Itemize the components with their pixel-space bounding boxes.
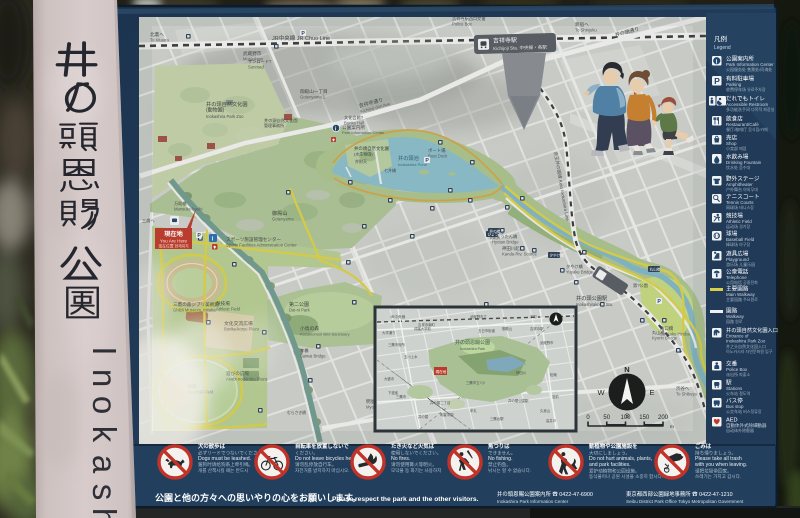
svg-text:100: 100 [620, 415, 631, 421]
svg-text:N: N [624, 365, 629, 374]
svg-text:たき火など火気は: たき火など火気は [391, 442, 435, 450]
svg-text:久我山: 久我山 [540, 408, 551, 413]
svg-text:W: W [597, 388, 605, 397]
svg-text:井の頭二丁目: 井の頭二丁目 [430, 400, 450, 405]
svg-text:Please respect the park and th: Please respect the park and the other vi… [332, 496, 479, 503]
svg-text:n: n [86, 369, 123, 387]
svg-text:東京都西部公園緑地事務所 ☎ 0422-47-1210: 東京都西部公園緑地事務所 ☎ 0422-47-1210 [626, 490, 733, 498]
svg-text:网球场 테니스장: 网球场 테니스장 [726, 204, 754, 210]
svg-text:모닥불 등 화기는 사용하지: 모닥불 등 화기는 사용하지 [391, 467, 441, 474]
svg-text:with you when leaving.: with you when leaving. [695, 462, 747, 468]
svg-text:游乐场 儿童乐园: 游乐场 儿童乐园 [726, 261, 755, 267]
svg-text:公园服务处 售票处/问询处: 公园服务处 售票处/问询处 [726, 66, 772, 72]
svg-text:公園と他の方々への思いやりの心をお願いします。: 公園と他の方々への思いやりの心をお願いします。 [155, 492, 361, 503]
svg-text:吉祥寺駅: 吉祥寺駅 [530, 326, 544, 331]
svg-text:井の頭恩賜公園: 井の頭恩賜公園 [455, 339, 490, 346]
svg-text:Dogs must be leashed.: Dogs must be leashed. [198, 456, 251, 462]
svg-text:Do not hurt animals, plants,: Do not hurt animals, plants, [589, 456, 652, 462]
svg-text:下連雀: 下連雀 [388, 390, 399, 395]
svg-text:自転車を放置しないで: 自転車を放置しないで [295, 442, 349, 450]
svg-text:御殿山: 御殿山 [502, 326, 513, 331]
svg-text:井の頭恩賜公園案内所 ☎ 0422-47-6900: 井の頭恩賜公園案内所 ☎ 0422-47-6900 [497, 490, 593, 498]
svg-text:自动体外除颤器: 自动体外除颤器 [726, 427, 754, 433]
svg-text:武蔵野市立: 武蔵野市立 [470, 314, 488, 319]
svg-text:公用电话 공중전화: 公用电话 공중전화 [726, 279, 758, 285]
svg-text:k: k [86, 426, 123, 443]
svg-text:Seibu District Park Office Tok: Seibu District Park Office Tokyo Metropo… [626, 499, 744, 504]
svg-text:ごみは: ごみは [695, 442, 712, 450]
svg-text:動植物や公園施設を: 動植物や公園施設を [589, 442, 638, 450]
svg-text:园路 원로: 园路 원로 [726, 318, 743, 324]
svg-text:神田川: 神田川 [516, 370, 527, 375]
svg-text:Inokashira Park Information Ce: Inokashira Park Information Center [497, 499, 569, 504]
svg-text:三鷹市役所: 三鷹市役所 [388, 342, 406, 347]
svg-text:JR中央線: JR中央線 [390, 314, 406, 319]
svg-text:낚시는 할 수 없습니다.: 낚시는 할 수 없습니다. [488, 467, 531, 474]
svg-text:Legend: Legend [714, 45, 731, 51]
svg-text:150: 150 [639, 415, 650, 421]
svg-text:Please take all trash: Please take all trash [695, 456, 742, 462]
svg-text:多功能洗手间 다목적 화장실: 多功能洗手间 다목적 화장실 [726, 106, 775, 112]
svg-text:犬の散歩は: 犬の散歩は [198, 442, 226, 450]
svg-text:井の頭: 井の頭 [418, 414, 429, 419]
svg-text:No fishing.: No fishing. [488, 456, 513, 462]
svg-text:收费停车场 유료주차장: 收费停车场 유료주차장 [726, 86, 766, 92]
svg-text:凡例: 凡例 [714, 34, 727, 43]
svg-text:I: I [86, 346, 123, 355]
svg-text:三鷹市立?小: 三鷹市立?小 [466, 380, 485, 385]
svg-text:牟礼: 牟礼 [470, 408, 477, 413]
svg-text:玉川上水: 玉川上水 [404, 354, 418, 359]
svg-text:本町: 本町 [530, 314, 537, 319]
svg-text:Inokashira Park Zoo: Inokashira Park Zoo [726, 339, 766, 344]
svg-text:三鷹台駅: 三鷹台駅 [490, 416, 504, 421]
svg-text:松庵: 松庵 [550, 372, 557, 377]
svg-text:饮水处 음수대: 饮水处 음수대 [726, 164, 750, 170]
svg-text:and park facilities.: and park facilities. [589, 462, 631, 468]
svg-text:公交车站 버스정류장: 公交车站 버스정류장 [726, 408, 762, 414]
svg-text:主要园路 주요원로: 主要园路 주요원로 [726, 296, 758, 302]
svg-text:运动场 경기장: 运动场 경기장 [726, 223, 750, 229]
svg-text:Inokashira Park: Inokashira Park [460, 347, 485, 351]
svg-text:派出所 파출소: 派出所 파출소 [726, 371, 750, 377]
svg-text:s: s [86, 484, 123, 501]
svg-text:개를 산책시킬 때는 반드시: 개를 산책시킬 때는 반드시 [198, 467, 248, 474]
svg-text:大学通り: 大学通り [382, 330, 396, 335]
svg-text:餐厅/咖啡厅 음식점/카페: 餐厅/咖啡厅 음식점/카페 [726, 126, 768, 132]
svg-text:現在地: 現在地 [436, 369, 447, 374]
svg-text:자전거를 방치하지 마십시오.: 자전거를 방치하지 마십시오. [295, 467, 350, 474]
svg-text:火车站 철도역: 火车站 철도역 [726, 390, 750, 396]
svg-text:동식물이나 공원 시설을 소중히 합시다.: 동식물이나 공원 시설을 소중히 합시다. [589, 473, 663, 480]
svg-text:棒球场 야구장: 棒球场 야구장 [726, 241, 750, 247]
svg-text:吉祥寺南町: 吉祥寺南町 [418, 322, 436, 327]
svg-text:P: P [714, 76, 720, 86]
svg-text:h: h [86, 508, 123, 518]
svg-text:a: a [86, 455, 123, 474]
svg-text:E: E [649, 388, 654, 397]
svg-text:이노카시라 자연문화원 입구: 이노카시라 자연문화원 입구 [726, 348, 773, 354]
svg-text:小卖部 매점: 小卖部 매점 [726, 145, 747, 151]
svg-text:高井戸: 高井戸 [546, 418, 557, 423]
svg-text:魚つりは: 魚つりは [488, 442, 510, 450]
svg-text:武蔵野市: 武蔵野市 [540, 340, 554, 345]
svg-text:五日市街道: 五日市街道 [478, 328, 496, 333]
svg-text:Do not leave bicycles here.: Do not leave bicycles here. [295, 456, 357, 462]
svg-text:明星学園: 明星学園 [440, 412, 454, 417]
svg-text:o: o [86, 396, 123, 414]
svg-text:大盛寺: 大盛寺 [384, 376, 395, 381]
svg-text:户外舞台 야외무대: 户外舞台 야외무대 [726, 186, 758, 192]
svg-text:m: m [670, 424, 674, 429]
svg-text:쓰레기는 가지고 갑시다.: 쓰레기는 가지고 갑시다. [695, 473, 741, 480]
svg-text:宮前: 宮前 [552, 394, 559, 399]
svg-text:No fires.: No fires. [391, 456, 410, 462]
svg-text:井の頭公園駅: 井の頭公園駅 [508, 398, 529, 403]
svg-text:50: 50 [603, 415, 610, 421]
svg-text:200: 200 [658, 415, 669, 421]
